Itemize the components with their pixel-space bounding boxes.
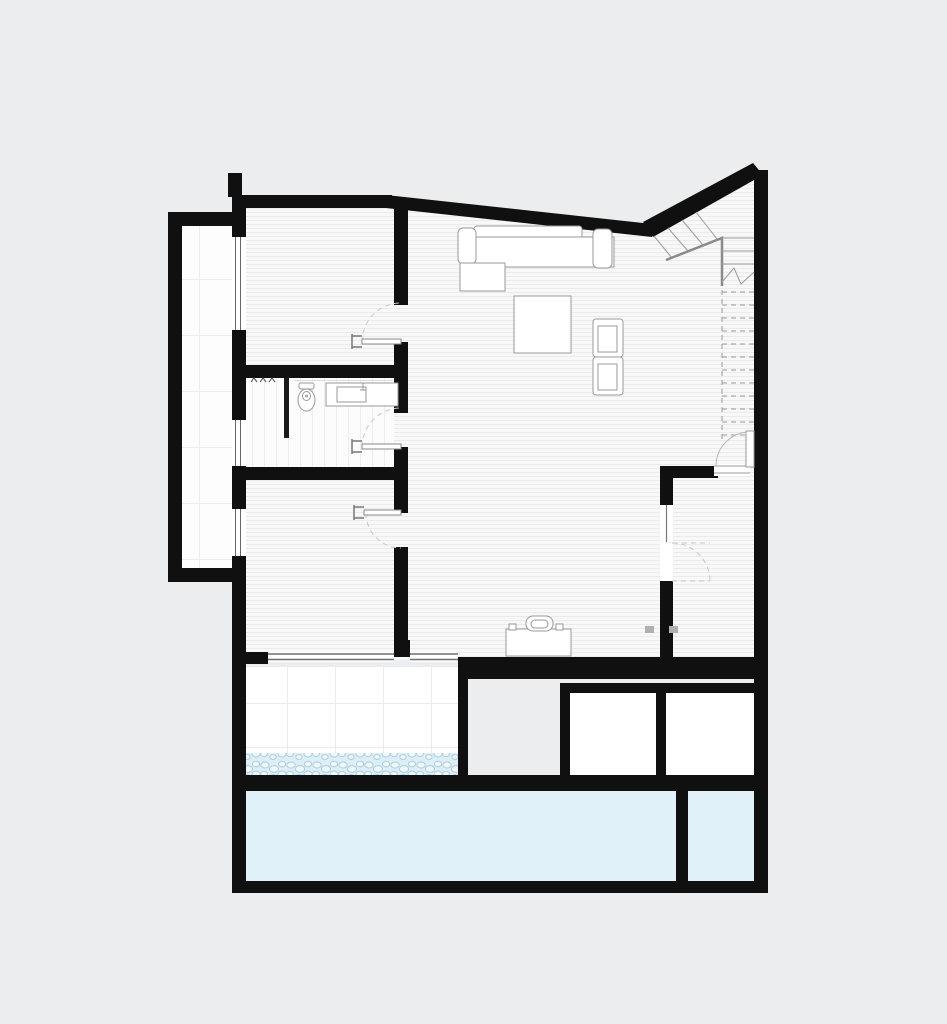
left-wall-stub xyxy=(228,173,242,197)
utility-left-wall-seg1 xyxy=(660,466,673,505)
coffee-table xyxy=(514,296,571,353)
bathroom-top-wall xyxy=(232,365,408,378)
balcony-top-wall xyxy=(168,212,234,226)
pool-bottom-wall xyxy=(232,881,768,893)
armchair-2 xyxy=(593,357,623,395)
top-wall xyxy=(232,195,392,208)
utility-left-wall-seg2 xyxy=(660,580,673,657)
floor-plan-canvas xyxy=(0,0,947,1024)
window-utility-room xyxy=(660,505,673,542)
bathroom-bottom-wall xyxy=(232,467,408,480)
toilet-icon xyxy=(298,383,315,411)
pebble-border xyxy=(246,753,458,775)
terrace-floor xyxy=(246,667,458,753)
pool-main xyxy=(246,791,676,881)
window-bedroom-lower xyxy=(232,509,246,556)
sliding-door-right xyxy=(410,652,458,662)
pool-small xyxy=(688,791,754,881)
storage-divider-wall xyxy=(656,683,666,775)
divider-wall-seg1 xyxy=(394,200,408,305)
terrace-patio-divider-wall xyxy=(458,657,468,791)
desk-chair xyxy=(526,616,553,631)
sliding-door-left xyxy=(268,652,394,662)
glazing-stub-wall xyxy=(246,652,268,664)
balcony-floor xyxy=(182,226,232,568)
window-bedroom-upper xyxy=(232,237,246,330)
shower-partition xyxy=(284,378,289,438)
washbasin-icon xyxy=(326,383,398,406)
floor-plan-drawing xyxy=(0,0,947,1024)
pool-top-wall xyxy=(232,775,768,791)
storage-room-2 xyxy=(666,693,754,775)
storage-room-1 xyxy=(570,693,656,775)
storage-left-wall xyxy=(560,683,570,791)
bedroom-lower-floor xyxy=(246,480,394,655)
living-bottom-wall xyxy=(458,657,768,679)
balcony-outer-wall xyxy=(168,212,182,582)
balcony-bottom-wall xyxy=(168,568,234,582)
glazing-mullion xyxy=(394,640,410,657)
pool-divider-wall xyxy=(676,791,688,893)
window-shower-room xyxy=(232,420,246,466)
armchair-1 xyxy=(593,319,623,357)
